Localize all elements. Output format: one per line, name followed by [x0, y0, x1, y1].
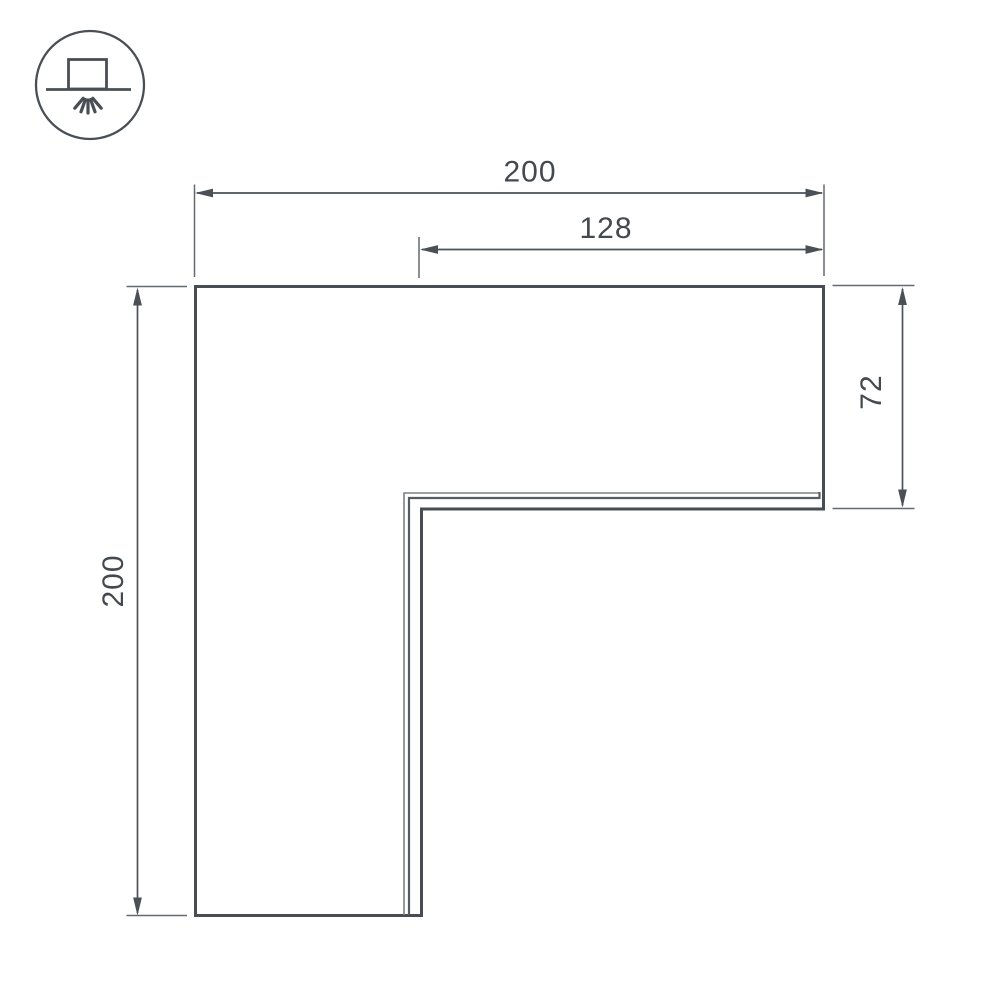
- l-profile: [196, 287, 824, 916]
- arrowhead-top: [898, 287, 907, 305]
- arrowhead-bottom: [133, 898, 142, 916]
- arrowhead-left: [420, 245, 438, 254]
- dimension-overall-height: 200: [97, 287, 187, 916]
- dimension-overall-width: 200: [195, 156, 825, 278]
- drawing-canvas: 200 128 200 72: [0, 0, 1000, 999]
- dimension-leg-depth: 72: [833, 286, 915, 509]
- icon-circle: [36, 31, 144, 139]
- l-profile-outline: [196, 287, 824, 916]
- dimension-label-leg-depth: 72: [855, 374, 888, 409]
- dimension-label-inner-width: 128: [579, 212, 632, 245]
- arrowhead-top: [133, 288, 142, 306]
- dimension-inner-width: 128: [419, 212, 824, 278]
- surface-mount-downlight-icon: [36, 31, 144, 139]
- dimension-label-overall-width: 200: [503, 156, 556, 189]
- arrowhead-bottom: [898, 490, 907, 508]
- inner-seam-line-light: [404, 493, 820, 915]
- arrowhead-right: [806, 189, 824, 198]
- arrowhead-right: [806, 245, 824, 254]
- luminaire-box: [69, 60, 107, 90]
- arrowhead-left: [195, 189, 213, 198]
- technical-drawing: 200 128 200 72: [0, 0, 1000, 999]
- dimension-label-overall-height: 200: [97, 554, 130, 607]
- inner-seam-line: [409, 498, 820, 915]
